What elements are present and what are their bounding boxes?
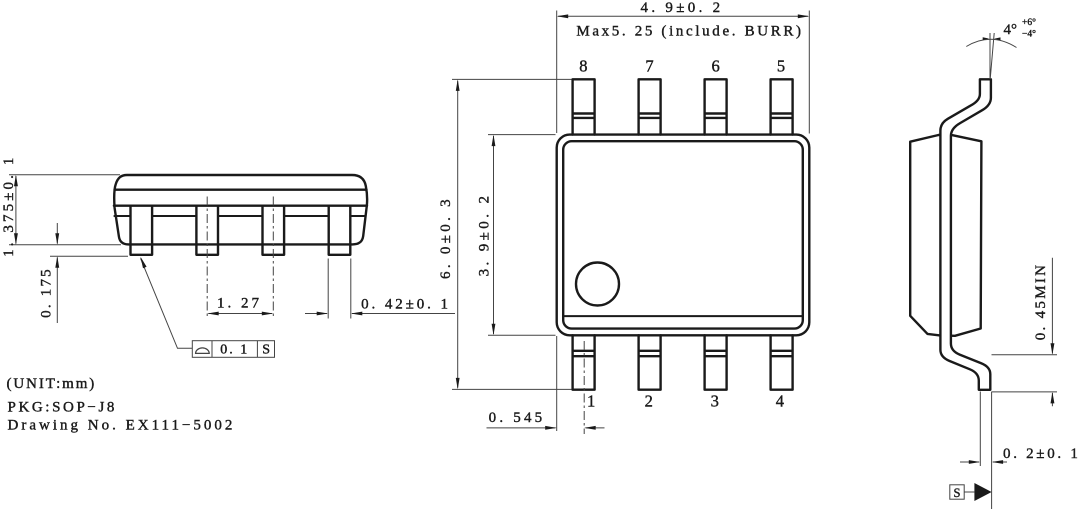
svg-text:1. 27: 1. 27: [217, 296, 262, 312]
svg-text:1. 375±0. 1: 1. 375±0. 1: [1, 155, 17, 257]
svg-text:0. 1: 0. 1: [220, 343, 249, 358]
svg-text:4°: 4°: [1004, 22, 1018, 38]
svg-text:0. 42±0. 1: 0. 42±0. 1: [361, 297, 451, 313]
svg-text:S: S: [262, 343, 270, 358]
svg-text:4. 9±0. 2: 4. 9±0. 2: [641, 0, 724, 16]
svg-text:4: 4: [776, 392, 784, 411]
svg-text:7: 7: [645, 57, 653, 76]
svg-text:0. 175: 0. 175: [39, 267, 55, 318]
svg-text:+6°: +6°: [1022, 17, 1036, 28]
svg-text:3. 9±0. 2: 3. 9±0. 2: [477, 193, 493, 277]
svg-text:6: 6: [711, 57, 719, 76]
svg-text:(UNIT:mm): (UNIT:mm): [7, 376, 97, 392]
svg-text:0. 45MIN: 0. 45MIN: [1033, 263, 1049, 341]
svg-text:PKG:SOP−J8: PKG:SOP−J8: [8, 400, 118, 416]
svg-text:8: 8: [579, 57, 587, 76]
svg-text:5: 5: [777, 57, 785, 76]
svg-text:2: 2: [645, 392, 653, 411]
svg-text:S: S: [954, 486, 961, 500]
svg-text:1: 1: [587, 392, 595, 411]
svg-text:Drawing No. EX111−5002: Drawing No. EX111−5002: [8, 417, 236, 433]
svg-text:Max5. 25 (include. BURR): Max5. 25 (include. BURR): [576, 24, 803, 40]
svg-text:0. 545: 0. 545: [489, 410, 546, 426]
svg-text:3: 3: [711, 392, 719, 411]
svg-text:6. 0±0. 3: 6. 0±0. 3: [438, 196, 454, 279]
svg-text:0. 2±0. 1: 0. 2±0. 1: [1003, 446, 1080, 462]
svg-text:−4°: −4°: [1022, 29, 1036, 40]
